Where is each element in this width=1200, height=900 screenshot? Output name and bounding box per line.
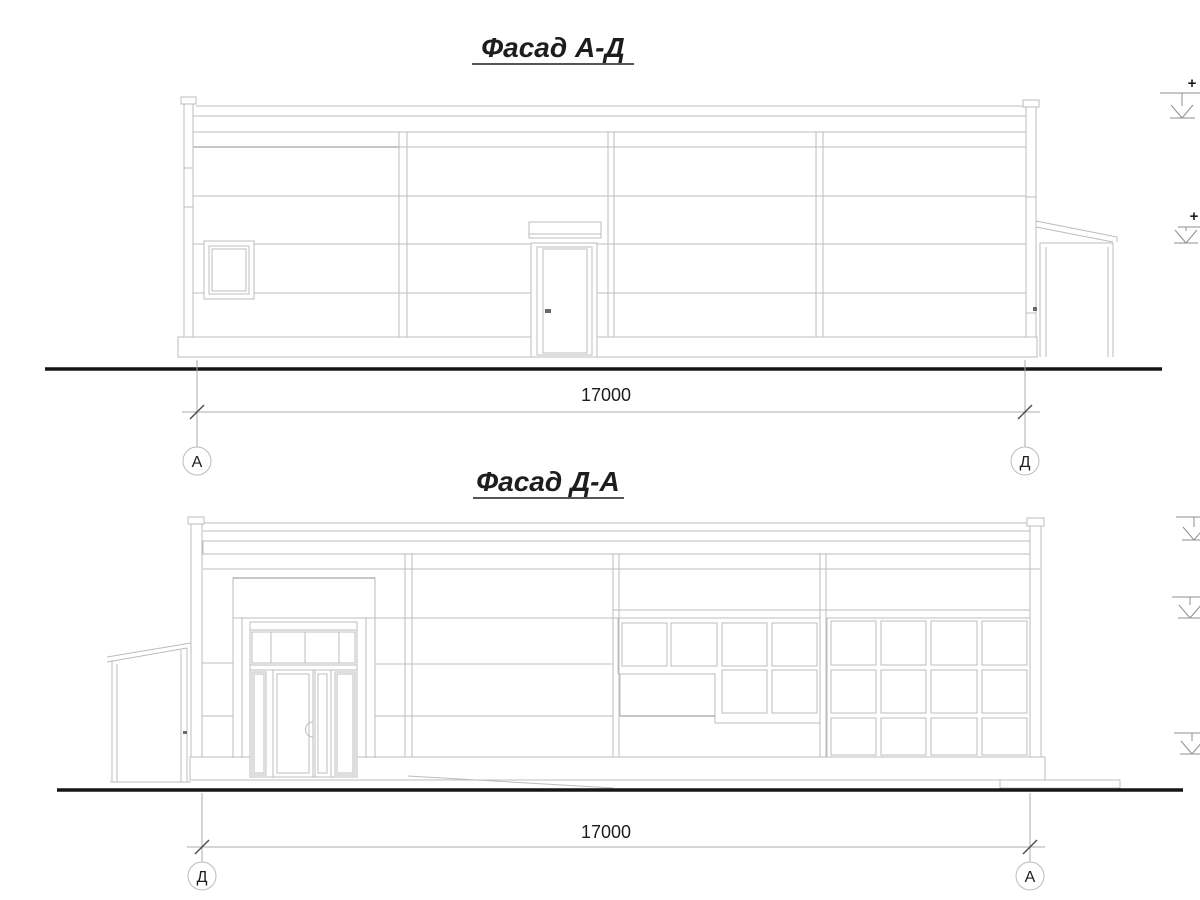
window bbox=[204, 241, 254, 299]
wall-vertical-lines bbox=[184, 104, 1036, 357]
axis-bubble-right: А bbox=[1016, 862, 1044, 890]
door bbox=[529, 222, 601, 357]
dimension-value: 17000 bbox=[581, 385, 631, 405]
window-grid-left bbox=[613, 618, 820, 723]
drawing-sheet: Фасад А-Д bbox=[0, 0, 1200, 900]
annex-right bbox=[1033, 221, 1117, 357]
elevation-mark bbox=[1174, 733, 1200, 754]
facade-ad-title: Фасад А-Д bbox=[481, 32, 624, 63]
dimension-value: 17000 bbox=[581, 822, 631, 842]
elevation-mark: + bbox=[1174, 208, 1200, 243]
door-canopy bbox=[529, 222, 601, 238]
elevation-mark bbox=[1172, 597, 1200, 618]
dimension-top: 17000 А Д bbox=[182, 360, 1040, 475]
axis-label: Д bbox=[1020, 454, 1031, 471]
facade-da-view: Фасад Д-А bbox=[57, 466, 1200, 890]
axis-label: А bbox=[192, 454, 203, 471]
elevation-mark bbox=[1176, 517, 1200, 540]
right-pilaster-cap bbox=[1023, 100, 1039, 107]
left-pilaster-cap bbox=[188, 517, 204, 524]
entrance-recess bbox=[233, 578, 375, 618]
annex-handle bbox=[1033, 307, 1037, 311]
pilaster-marks bbox=[184, 168, 1036, 313]
left-pilaster-cap bbox=[181, 97, 196, 104]
window-grid-right bbox=[827, 618, 1030, 757]
axis-label: Д bbox=[197, 869, 208, 886]
elevation-value: + bbox=[1188, 75, 1197, 92]
right-pilaster-cap bbox=[1027, 518, 1044, 526]
facade-da-title: Фасад Д-А bbox=[476, 466, 619, 497]
axis-label: А bbox=[1025, 869, 1036, 886]
wall-band-lines bbox=[193, 106, 1026, 293]
annex-left bbox=[107, 643, 191, 782]
elevation-mark: + bbox=[1160, 75, 1200, 118]
elevation-value: + bbox=[1190, 208, 1199, 225]
dimension-bottom: 17000 Д А bbox=[187, 793, 1045, 890]
axis-bubble-right: Д bbox=[1011, 447, 1039, 475]
parapet-fascia-band bbox=[203, 541, 1030, 554]
base-plinth bbox=[178, 337, 1037, 357]
apron bbox=[1000, 780, 1120, 788]
door-handle bbox=[545, 309, 551, 313]
annex-handle bbox=[183, 731, 187, 734]
elevation-drawing: Фасад А-Д bbox=[0, 0, 1200, 900]
entrance bbox=[233, 578, 375, 777]
facade-ad-view: Фасад А-Д bbox=[45, 32, 1200, 475]
axis-bubble-left: Д bbox=[188, 862, 216, 890]
axis-bubble-left: А bbox=[183, 447, 211, 475]
